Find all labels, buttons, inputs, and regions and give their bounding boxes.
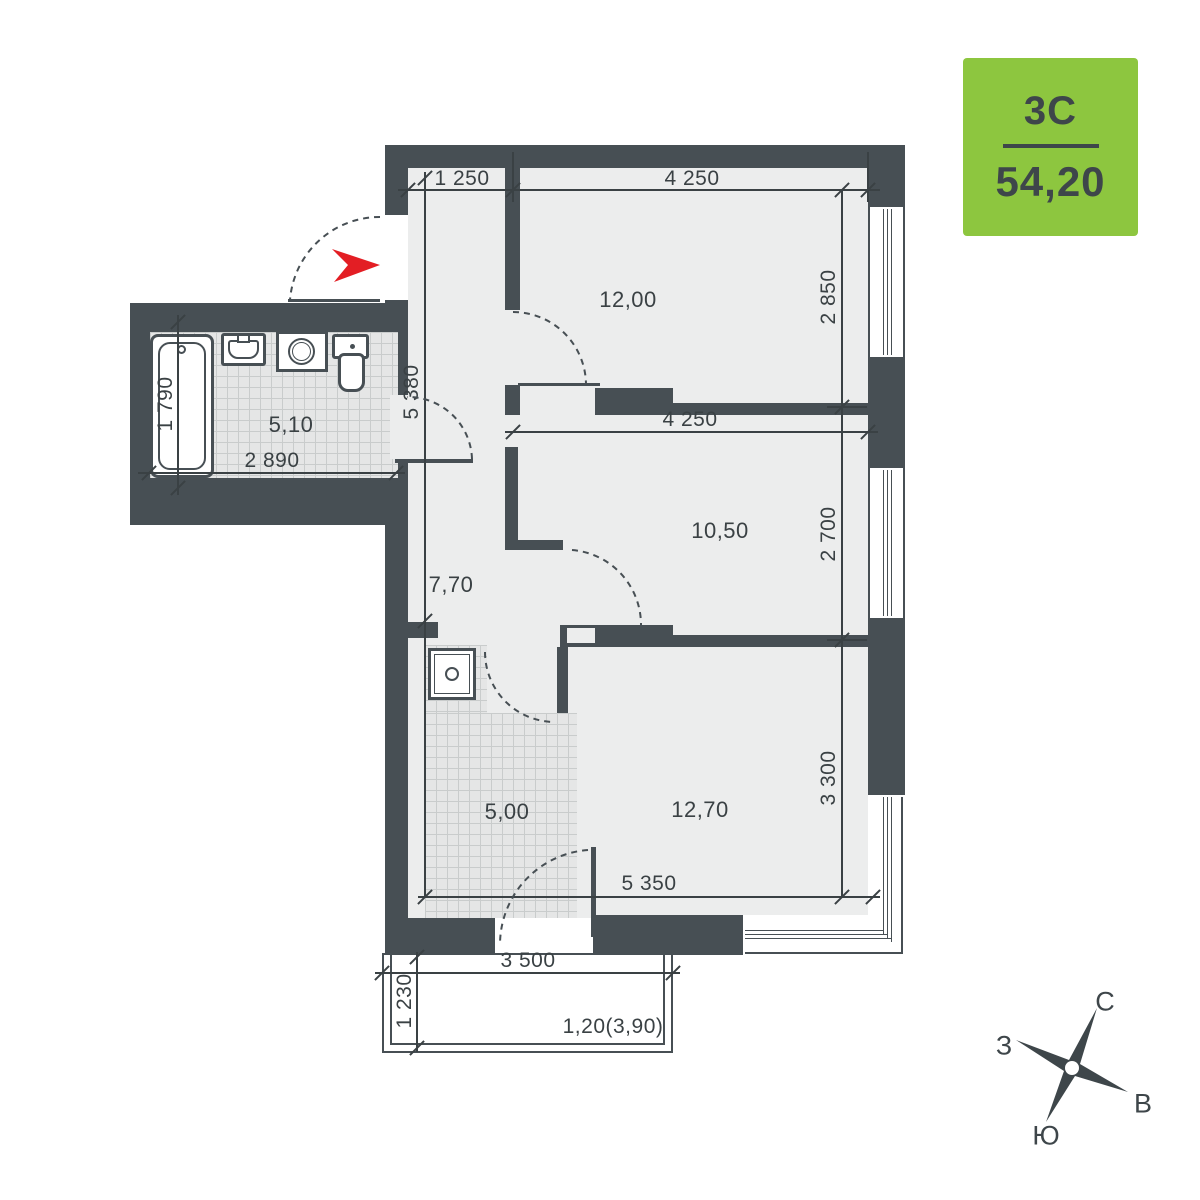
dimension-line <box>418 896 880 898</box>
dim-label-mid-width: 4 250 <box>662 408 717 432</box>
dim-label-right-upper: 2 850 <box>817 269 841 324</box>
sink-icon <box>221 333 266 366</box>
room-label-hallway: 7,70 <box>429 572 474 598</box>
total-area-label: 54,20 <box>995 158 1105 206</box>
wall <box>557 647 568 720</box>
toilet-flush-button <box>350 344 355 349</box>
window-glazing <box>891 209 892 355</box>
compass-label-west: З <box>996 1031 1012 1062</box>
washing-machine-icon <box>276 331 328 372</box>
wall <box>505 447 518 540</box>
room-label-kitchen-living: 12,70 <box>671 797 729 823</box>
dim-label-bath-height: 1 790 <box>154 376 178 431</box>
wall <box>385 918 495 955</box>
extension-line <box>867 152 869 202</box>
floor-plan-canvas: 1 250 4 250 2 850 4 250 2 700 3 300 5 35… <box>0 0 1200 1200</box>
room-label-kitchen: 5,00 <box>485 799 530 825</box>
wall <box>505 540 563 550</box>
dimension-line <box>424 172 426 897</box>
window-glazing <box>745 934 888 935</box>
plan-type-label: 3С <box>1024 89 1077 134</box>
wall <box>385 145 905 168</box>
window-glazing <box>887 797 888 938</box>
window-glazing <box>891 470 892 616</box>
window-glazing <box>883 470 884 616</box>
window-glazing <box>887 209 888 355</box>
door-swing-arc-entrance <box>290 217 380 300</box>
dim-label-top-right: 4 250 <box>664 167 719 191</box>
window-frame <box>745 952 903 954</box>
extension-line <box>827 406 867 408</box>
compass-rose <box>1016 1008 1128 1122</box>
area-badge: 3С 54,20 <box>963 58 1138 236</box>
extension-line <box>827 639 867 641</box>
dim-label-bath-width: 2 890 <box>244 449 299 473</box>
window-glazing <box>883 209 884 355</box>
dim-label-balcony-width: 3 500 <box>500 949 555 973</box>
window-glazing <box>887 470 888 616</box>
wall <box>593 915 743 955</box>
dim-label-right-middle: 2 700 <box>817 506 841 561</box>
dim-label-hall-height: 5 380 <box>400 364 424 419</box>
extension-line <box>512 152 514 202</box>
dim-label-top-left: 1 250 <box>434 167 489 191</box>
kitchen-sink-icon <box>428 648 476 700</box>
window-frame <box>901 797 903 954</box>
washing-machine-drum <box>292 342 311 361</box>
entrance-door-leaf <box>288 299 380 302</box>
dim-label-right-lower: 3 300 <box>817 750 841 805</box>
wall <box>505 385 520 415</box>
balcony-door-leaf <box>591 847 596 937</box>
window-glazing <box>891 797 892 942</box>
room-label-bedroom: 10,50 <box>691 518 749 544</box>
dim-label-balcony-depth: 1 230 <box>393 973 417 1028</box>
compass-label-east: В <box>1134 1089 1152 1120</box>
wall <box>595 388 673 415</box>
kitchen-sink-drain <box>445 667 459 681</box>
dim-label-bottom-inner: 5 350 <box>621 872 676 896</box>
door-opening <box>567 628 595 643</box>
dim-label-balcony-area: 1,20(3,90) <box>563 1015 664 1039</box>
bathroom-door-leaf <box>395 459 473 463</box>
compass-label-south: Ю <box>1032 1121 1059 1152</box>
compass-center <box>1065 1061 1079 1075</box>
badge-divider <box>1003 144 1099 148</box>
room-door-leaf <box>518 383 600 386</box>
room-label-bathroom: 5,10 <box>269 412 314 438</box>
entrance-arrow-icon <box>332 249 380 282</box>
dimension-line <box>841 190 843 898</box>
compass-star <box>1016 1008 1128 1122</box>
window-glazing <box>745 938 892 939</box>
toilet-bowl <box>338 353 365 392</box>
compass-label-north: С <box>1095 987 1115 1018</box>
sink-faucet <box>237 334 250 343</box>
window-glazing <box>883 797 884 934</box>
wall <box>385 525 408 918</box>
window-glazing <box>745 930 884 931</box>
room-label-living: 12,00 <box>599 287 657 313</box>
